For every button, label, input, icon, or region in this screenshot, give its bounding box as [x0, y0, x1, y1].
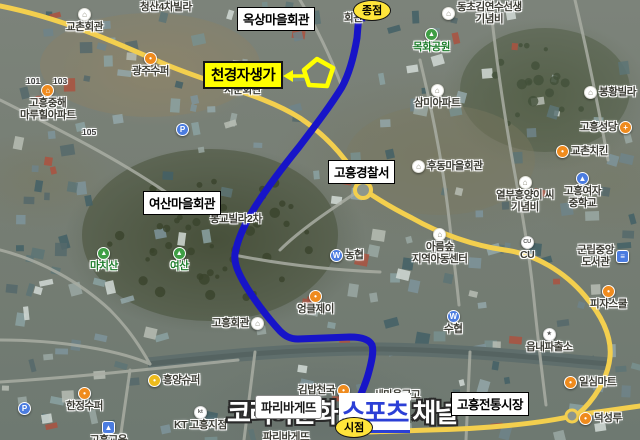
map-canvas[interactable]: 청산4차빌라 ⌂교촌회관 •광주수퍼 ⌂고흥중해 마루힐아파트 101 103 … — [0, 0, 640, 440]
school-icon: ▲ — [102, 421, 115, 434]
hall-icon: ⌂ — [412, 160, 425, 173]
annotation-paris-baguette: 파리바게뜨 — [255, 395, 322, 419]
poi-paris-baguette-small[interactable]: 파리바게뜨 — [263, 432, 309, 440]
poi-girls-middle-school[interactable]: ▲고흥여자 중학교 — [564, 172, 601, 210]
annotation-oksang-hall: 옥상마을회관 — [237, 7, 315, 31]
mini-roundabout — [566, 410, 578, 422]
poi-bonghwang-villa[interactable]: ⌂봉황빌라 — [584, 86, 636, 99]
route-start-badge: 시점 — [335, 417, 373, 438]
poi-maruhill-apt[interactable]: ⌂고흥중해 마루힐아파트 — [20, 84, 76, 122]
park-icon: ▲ — [425, 28, 438, 41]
poi-yeolbu-memorial[interactable]: ⌂열부흥양이 씨 기념비 — [496, 176, 554, 214]
poi-sammi-apt[interactable]: ⌂삼미아파트 — [414, 84, 460, 110]
poi-bonggyo-villa[interactable]: 봉교빌라2차 — [210, 214, 262, 226]
callout-arrowhead — [283, 70, 293, 82]
store-icon: • — [148, 374, 161, 387]
mountain-icon: ▲ — [173, 247, 186, 260]
school-icon: ▲ — [576, 172, 589, 185]
poi-hanjeong-super[interactable]: •한정수퍼 — [66, 387, 103, 413]
poi-dongcho-memorial[interactable]: ⌂동초김연수선생 기념비 — [442, 2, 522, 26]
poi-gwangju-super[interactable]: •광주수퍼 — [132, 52, 169, 78]
memorial-icon: ⌂ — [442, 7, 455, 20]
hall-icon: ⌂ — [433, 228, 446, 241]
poi-goheung-education[interactable]: ▲고흥교육 — [90, 421, 127, 440]
map-graphics — [0, 0, 640, 440]
poi-mokhwa-park[interactable]: ▲목화공원 — [413, 28, 450, 54]
store-icon: • — [564, 376, 577, 389]
poi-bldg-105: 105 — [82, 128, 96, 138]
restaurant-icon: • — [602, 285, 615, 298]
hall-icon: ⌂ — [251, 317, 264, 330]
police-icon: ★ — [543, 328, 556, 341]
poi-uncle-j[interactable]: •엉클제이 — [297, 290, 334, 316]
poi-deokseongru[interactable]: •덕성루 — [579, 412, 622, 425]
library-icon: ≡ — [616, 250, 629, 263]
roundabout — [355, 182, 371, 198]
church-icon: + — [619, 121, 632, 134]
poi-bldg-103: 103 — [53, 77, 67, 87]
kt-icon: kt — [194, 406, 207, 419]
home-icon: ⌂ — [584, 86, 597, 99]
restaurant-icon: • — [579, 412, 592, 425]
bank-icon: W — [447, 310, 460, 323]
poi-yeosan-mountain[interactable]: ▲여산 — [170, 247, 189, 273]
poi-machisan[interactable]: ▲마치산 — [90, 247, 118, 273]
poi-hudong-hall[interactable]: ⌂후동마을회관 — [412, 160, 483, 173]
poi-nonghyup-bank[interactable]: W농협 — [330, 249, 364, 262]
watermark-part3: 채널 — [412, 393, 456, 430]
store-icon: • — [144, 52, 157, 65]
parking-icon[interactable]: P — [176, 123, 189, 136]
bank-icon: W — [330, 249, 343, 262]
poi-areumsup-center[interactable]: ⌂아름숲 지역아동센터 — [412, 228, 468, 266]
store-icon: • — [78, 387, 91, 400]
poi-goheung-hall[interactable]: 고흥회관⌂ — [212, 317, 264, 330]
cu-icon: CU — [521, 236, 534, 249]
poi-gyochon-chicken[interactable]: •교촌치킨 — [556, 145, 608, 158]
annotation-traditional-market: 고흥전통시장 — [451, 392, 529, 416]
poi-county-library[interactable]: 군립중앙 도서관≡ — [577, 245, 629, 269]
poi-police-box[interactable]: ★읍내파출소 — [526, 328, 572, 354]
poi-ilsim-mart[interactable]: •일심마트 — [564, 376, 616, 389]
route-end-badge: 종점 — [353, 0, 391, 21]
poi-cheongsan-villa[interactable]: 청산4차빌라 — [140, 2, 192, 14]
callout-birthplace: 천경자생가 — [203, 61, 283, 89]
restaurant-icon: • — [309, 290, 322, 303]
memorial-icon: ⌂ — [519, 176, 532, 189]
poi-cu-store[interactable]: CUCU — [520, 236, 534, 262]
poi-gyochon-hall[interactable]: ⌂교촌회관 — [66, 8, 103, 34]
mountain-icon: ▲ — [97, 247, 110, 260]
poi-pizza-school[interactable]: •피자스쿨 — [590, 285, 627, 311]
parking-icon[interactable]: P — [18, 402, 31, 415]
poi-goheung-cathedral[interactable]: 고흥성당+ — [580, 121, 632, 134]
restaurant-icon: • — [556, 145, 569, 158]
hall-icon: ⌂ — [78, 8, 91, 21]
poi-heungyang-super[interactable]: •흥양슈퍼 — [148, 374, 200, 387]
pentagon-marker — [283, 59, 333, 86]
poi-suhyup-bank[interactable]: W수협 — [444, 310, 463, 336]
annotation-police-station: 고흥경찰서 — [328, 160, 395, 184]
poi-kt-branch[interactable]: ktKT 고흥지점 — [174, 406, 227, 432]
apartment-icon: ⌂ — [431, 84, 444, 97]
annotation-yeosan-hall: 여산마을회관 — [143, 191, 221, 215]
poi-bldg-101: 101 — [26, 77, 40, 87]
